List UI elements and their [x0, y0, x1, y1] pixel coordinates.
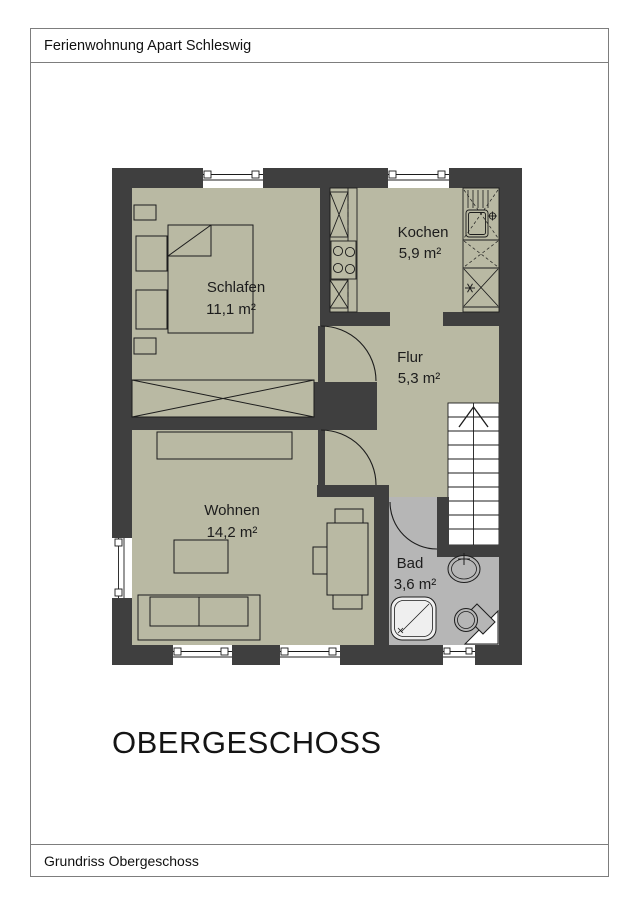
- room-label-bad: Bad: [397, 555, 424, 572]
- window-kochen-north: [388, 168, 449, 188]
- wohnen-door-leaf: [318, 430, 325, 485]
- wall-divider-schlafen-kochen: [320, 188, 330, 326]
- kitchen-counter-west: [330, 188, 357, 312]
- wardrobe: [132, 380, 314, 417]
- shower: [391, 597, 436, 640]
- coffee-table: [174, 540, 228, 573]
- wall-top: [112, 168, 522, 188]
- room-area-bad: 3,6 m²: [394, 576, 437, 593]
- room-label-schlafen: Schlafen: [207, 279, 265, 296]
- room-label-kochen: Kochen: [398, 224, 449, 241]
- chair-bottom: [333, 595, 362, 609]
- floor-title: OBERGESCHOSS: [112, 725, 382, 761]
- window-schlafen-north: [203, 168, 263, 188]
- chair-top: [335, 509, 363, 523]
- nightstand-top: [134, 205, 156, 220]
- window-wohnen-south-2: [280, 645, 340, 665]
- window-wohnen-south-1: [173, 645, 232, 665]
- room-label-wohnen: Wohnen: [204, 502, 260, 519]
- sofa: [138, 595, 260, 640]
- staircase: [448, 403, 499, 545]
- nightstand-bottom: [134, 338, 156, 354]
- stove: [331, 241, 356, 279]
- page: Ferienwohnung Apart Schleswig Grundriss …: [0, 0, 640, 906]
- room-area-wohnen: 14,2 m²: [207, 524, 258, 541]
- wall-stairwell-horizontal: [437, 545, 499, 557]
- room-area-kochen: 5,9 m²: [399, 245, 442, 262]
- room-area-flur: 5,3 m²: [398, 370, 441, 387]
- bad-radiator: [383, 527, 387, 585]
- kitchen-counter-east: [463, 188, 499, 312]
- wall-schlafen-wohnen: [132, 417, 317, 430]
- wall-right: [499, 168, 522, 665]
- window-wohnen-west: [112, 538, 132, 598]
- bed-pillow-1: [136, 236, 167, 271]
- bed-pillow-2: [136, 290, 167, 329]
- wall-kitchen-south-left: [320, 312, 390, 326]
- floorplan: Schlafen 11,1 m² Kochen 5,9 m² Flur 5,3 …: [0, 0, 640, 906]
- wall-central-block: [313, 382, 377, 430]
- sideboard: [157, 432, 292, 459]
- chair-left: [313, 547, 327, 574]
- room-label-flur: Flur: [397, 349, 423, 366]
- schlafen-door-leaf: [318, 326, 325, 382]
- dining-table: [327, 523, 368, 595]
- wall-kitchen-south-right: [443, 312, 499, 326]
- window-bad-south: [443, 645, 475, 665]
- room-area-schlafen: 11,1 m²: [206, 301, 256, 318]
